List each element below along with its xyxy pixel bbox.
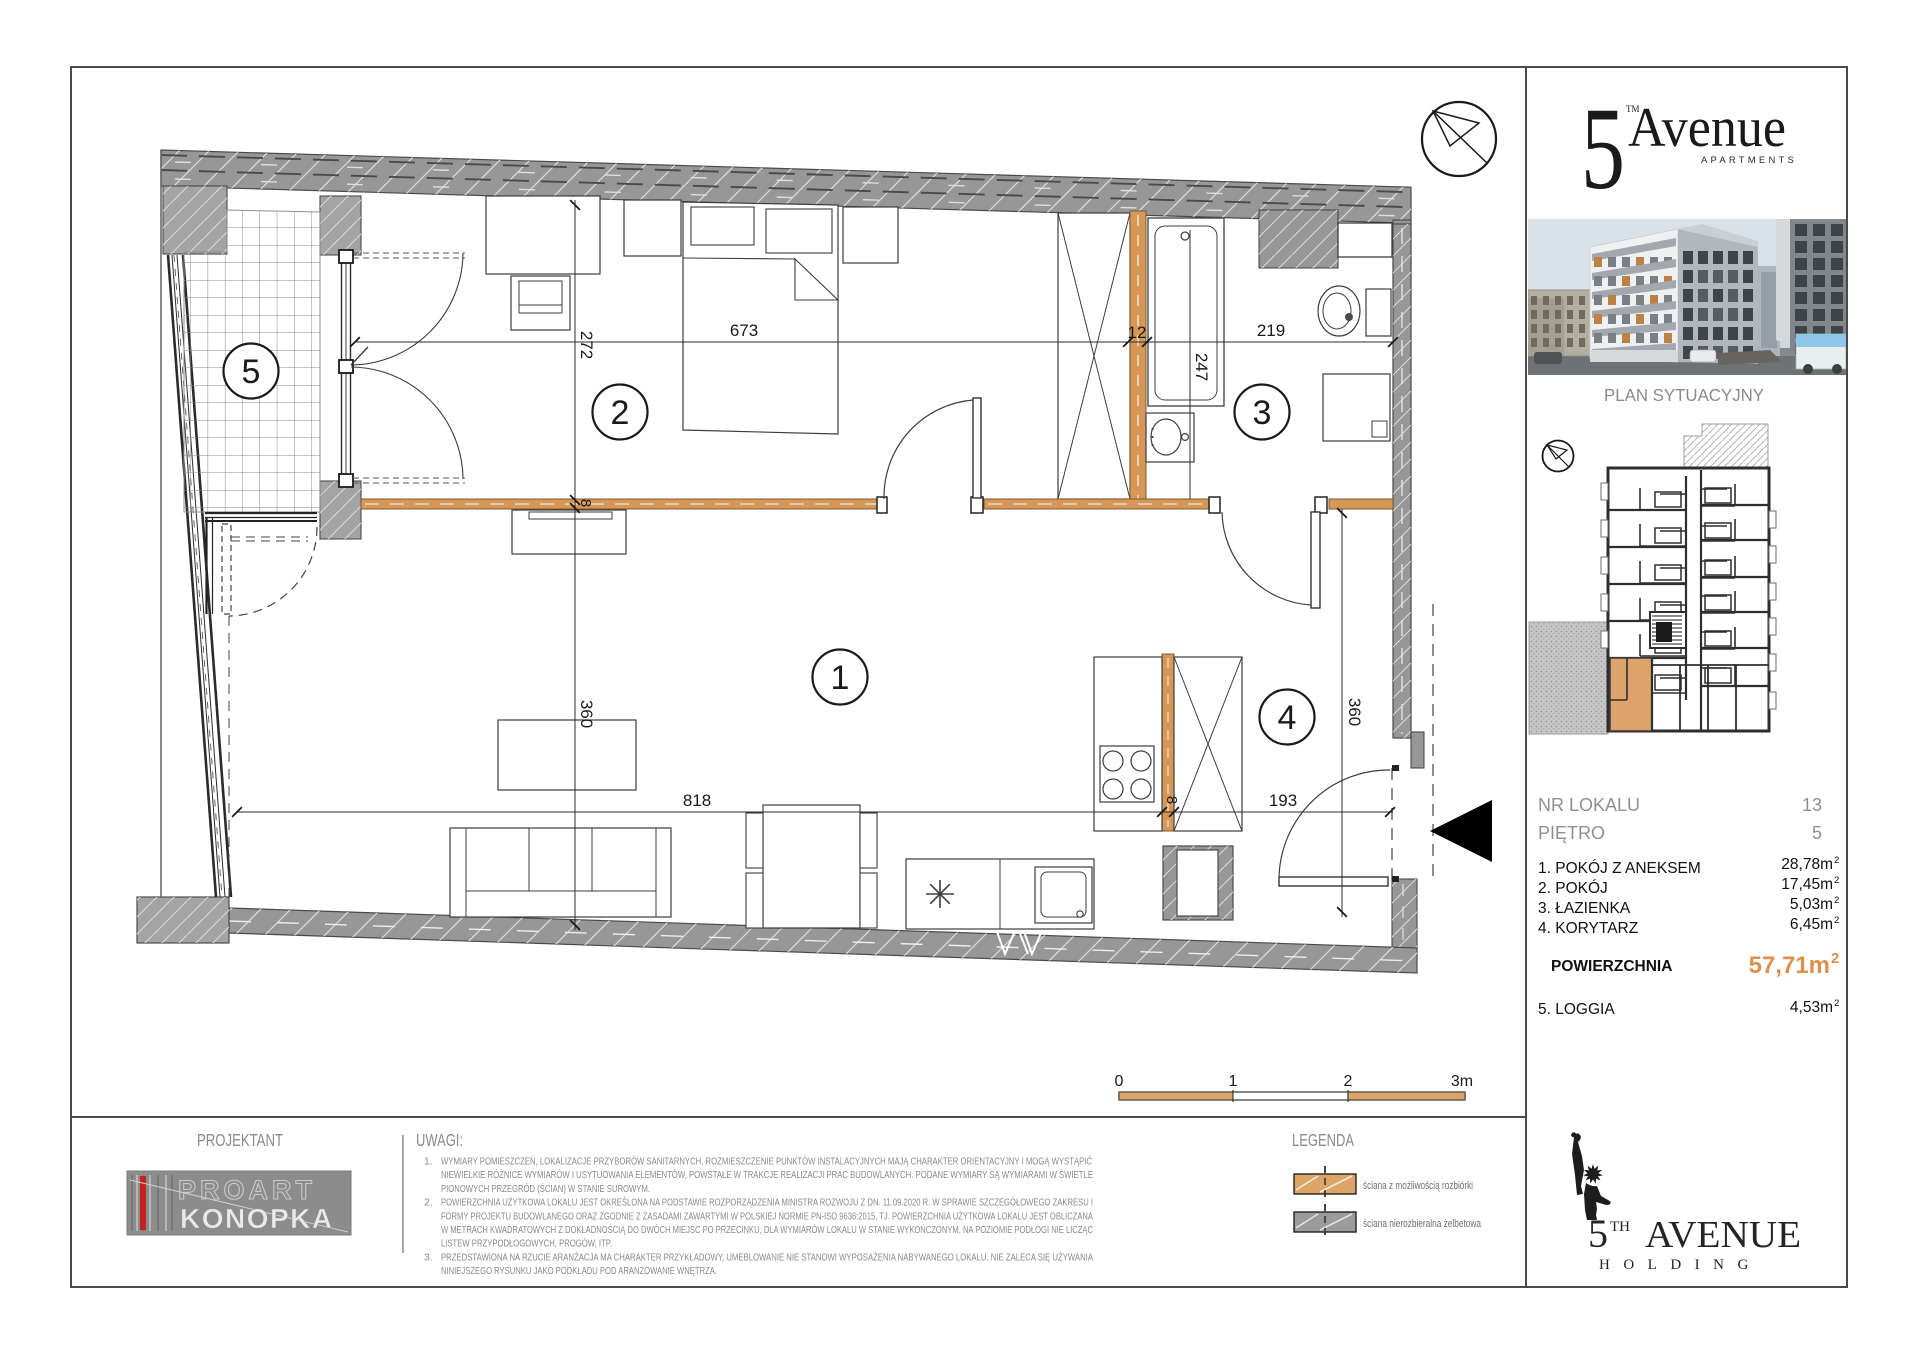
svg-text:5. LOGGIA: 5. LOGGIA xyxy=(1538,1001,1615,1018)
svg-text:3.: 3. xyxy=(424,1251,433,1263)
svg-text:NIEWIELKIE RÓŻNICE WYMIARÓW I: NIEWIELKIE RÓŻNICE WYMIARÓW I USYTUOWANI… xyxy=(441,1168,1093,1181)
svg-text:272: 272 xyxy=(577,331,596,359)
svg-text:5: 5 xyxy=(1812,823,1822,843)
svg-text:360: 360 xyxy=(577,700,596,728)
svg-text:5: 5 xyxy=(1588,1211,1608,1256)
svg-text:193: 193 xyxy=(1269,791,1297,810)
svg-text:5,03m: 5,03m xyxy=(1790,896,1833,913)
svg-text:PIĘTRO: PIĘTRO xyxy=(1538,823,1605,843)
svg-text:818: 818 xyxy=(683,791,711,810)
svg-text:1. POKÓJ Z ANEKSEM: 1. POKÓJ Z ANEKSEM xyxy=(1538,860,1701,877)
svg-text:ściana z możliwością rozbiórki: ściana z możliwością rozbiórki xyxy=(1363,1180,1473,1192)
svg-text:LEGENDA: LEGENDA xyxy=(1292,1130,1354,1150)
svg-text:4,53m: 4,53m xyxy=(1790,999,1833,1016)
svg-text:4: 4 xyxy=(1278,699,1297,737)
svg-text:FORMY PROJEKTU BUDOWLANEGO ORA: FORMY PROJEKTU BUDOWLANEGO ORAZ ZGODNIE … xyxy=(441,1209,1093,1222)
svg-text:WYMIARY POMIESZCZEŃ, LOKALIZAC: WYMIARY POMIESZCZEŃ, LOKALIZACJE PRZYBOR… xyxy=(441,1155,1092,1168)
svg-text:360: 360 xyxy=(1345,698,1364,726)
svg-text:UWAGI:: UWAGI: xyxy=(416,1130,463,1150)
svg-text:2: 2 xyxy=(1834,855,1839,866)
svg-text:1: 1 xyxy=(1229,1073,1238,1090)
svg-text:3m: 3m xyxy=(1451,1073,1473,1090)
svg-text:2: 2 xyxy=(1344,1073,1353,1090)
svg-text:2: 2 xyxy=(1831,950,1839,967)
svg-text:8: 8 xyxy=(1163,796,1180,804)
svg-text:TH: TH xyxy=(1610,1219,1630,1235)
svg-text:57,71m: 57,71m xyxy=(1749,952,1830,979)
svg-text:W METRACH KWADRATOWYCH Z DOKŁA: W METRACH KWADRATOWYCH Z DOKŁADNOŚCIĄ DO… xyxy=(441,1223,1093,1236)
svg-text:PIONOWYCH PRZEGRÓD (ŚCIAN) W S: PIONOWYCH PRZEGRÓD (ŚCIAN) W STANIE SURO… xyxy=(441,1182,650,1195)
svg-text:2. POKÓJ: 2. POKÓJ xyxy=(1538,880,1608,897)
svg-text:NR LOKALU: NR LOKALU xyxy=(1538,795,1640,815)
svg-text:8: 8 xyxy=(577,499,594,507)
svg-text:5: 5 xyxy=(242,353,261,391)
svg-text:3. ŁAZIENKA: 3. ŁAZIENKA xyxy=(1538,900,1631,917)
svg-text:POWIERZCHNIA UŻYTKOWA LOKALU J: POWIERZCHNIA UŻYTKOWA LOKALU JEST OKREŚL… xyxy=(441,1196,1093,1209)
svg-text:POWIERZCHNIA: POWIERZCHNIA xyxy=(1551,958,1672,975)
svg-text:PRZEDSTAWIONA NA RZUCIE ARANŻA: PRZEDSTAWIONA NA RZUCIE ARANŻACJA MA CHA… xyxy=(441,1250,1093,1263)
svg-text:KONOPKA: KONOPKA xyxy=(180,1203,334,1234)
svg-text:28,78m: 28,78m xyxy=(1781,856,1833,873)
svg-text:PLAN SYTUACYJNY: PLAN SYTUACYJNY xyxy=(1604,385,1764,405)
svg-text:PROJEKTANT: PROJEKTANT xyxy=(197,1130,283,1150)
svg-text:1.: 1. xyxy=(424,1156,433,1168)
svg-text:13: 13 xyxy=(1802,795,1822,815)
svg-text:0: 0 xyxy=(1115,1073,1124,1090)
svg-text:17,45m: 17,45m xyxy=(1781,876,1833,893)
svg-text:2.: 2. xyxy=(424,1197,433,1209)
svg-text:2: 2 xyxy=(1834,998,1839,1009)
svg-text:AVENUE: AVENUE xyxy=(1645,1214,1801,1256)
svg-text:ściana nierozbieralna żelbetow: ściana nierozbieralna żelbetowa xyxy=(1363,1218,1482,1230)
svg-text:2: 2 xyxy=(1834,875,1839,886)
svg-text:2: 2 xyxy=(1834,895,1839,906)
svg-text:219: 219 xyxy=(1257,321,1285,340)
svg-text:LISTEW PRZYPODŁOGOWYCH, PROGÓW: LISTEW PRZYPODŁOGOWYCH, PROGÓW, ITP. xyxy=(441,1237,612,1250)
svg-text:12: 12 xyxy=(1128,323,1147,342)
svg-text:Avenue: Avenue xyxy=(1628,97,1786,159)
svg-text:673: 673 xyxy=(730,321,758,340)
svg-text:HOLDING: HOLDING xyxy=(1599,1257,1762,1273)
svg-text:6,45m: 6,45m xyxy=(1790,916,1833,933)
svg-text:4. KORYTARZ: 4. KORYTARZ xyxy=(1538,920,1638,937)
svg-text:247: 247 xyxy=(1192,353,1211,381)
svg-text:5: 5 xyxy=(1581,83,1625,214)
svg-text:3: 3 xyxy=(1253,394,1272,432)
svg-text:2: 2 xyxy=(1834,915,1839,926)
svg-text:2: 2 xyxy=(611,394,630,432)
svg-text:1: 1 xyxy=(831,659,850,697)
svg-text:APARTMENTS: APARTMENTS xyxy=(1701,155,1797,166)
svg-text:PROART: PROART xyxy=(178,1175,316,1205)
svg-text:NINIEJSZEGO RYSUNKU JAKO PODKŁ: NINIEJSZEGO RYSUNKU JAKO PODKŁADU POD AR… xyxy=(441,1264,717,1277)
